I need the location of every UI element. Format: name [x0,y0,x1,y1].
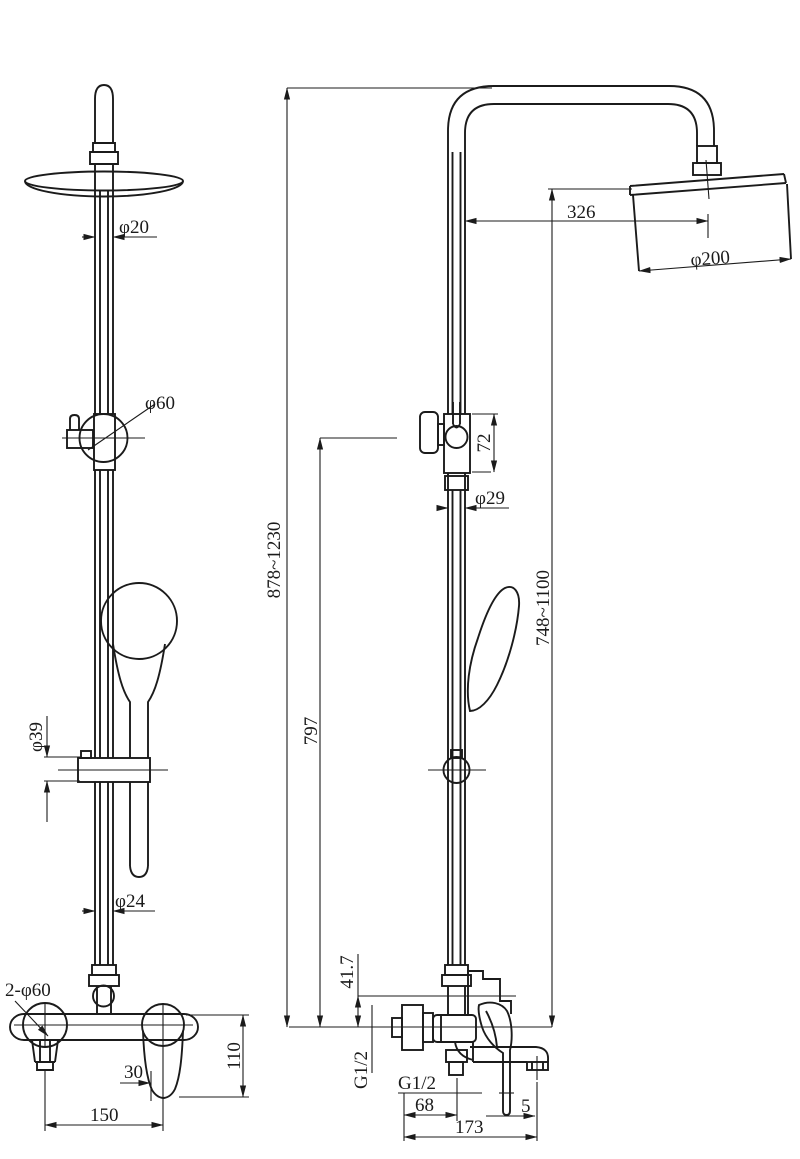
dim-878-1230: 878~1230 [264,88,492,1027]
dim-label-30: 30 [124,1062,143,1083]
dim-label-748-1100: 748~1100 [533,570,554,646]
dim-label-72: 72 [474,434,495,453]
dim-label-110: 110 [224,1042,245,1070]
dim-label-phi24: φ24 [115,891,145,912]
dim-748-1100: 748~1100 [533,189,632,1027]
shower-arm-side [448,86,721,175]
side-view: φ200 326 72 φ29 [264,86,791,1141]
dim-110: 110 [179,1015,249,1097]
riser-pipe-front [90,85,118,1014]
riser-pipe-side [448,152,465,1015]
dim-label-phi39: φ39 [26,722,47,752]
dim-label-phi200: φ200 [690,247,731,271]
dim-label-797: 797 [301,717,322,746]
dim-label-41-7: 41.7 [337,955,358,988]
dim-label-150: 150 [90,1105,119,1126]
dim-phi20: φ20 [82,217,157,238]
dim-label-878-1230: 878~1230 [264,522,285,599]
dim-label-326: 326 [567,202,596,223]
dim-label-2phi60: 2-φ60 [5,980,51,1001]
dim-label-phi29: φ29 [475,488,505,509]
dim-g12-wall: G1/2 [351,1005,372,1089]
dim-72: 72 [472,414,498,472]
slider-bracket-front: φ60 [62,393,175,470]
front-view: φ20 φ60 φ39 [5,85,249,1131]
dim-phi24: φ24 [82,891,155,912]
dim-label-g12-wall: G1/2 [351,1051,372,1089]
dim-label-68: 68 [415,1095,434,1116]
dim-150: 150 [45,1071,163,1131]
hand-shower-side [428,587,519,783]
dim-label-phi60: φ60 [145,393,175,414]
dim-g12-hose: G1/2 [398,1073,482,1094]
dim-phi29: φ29 [441,488,509,509]
dim-label-5: 5 [521,1096,531,1117]
dim-5: 5 [486,1082,537,1141]
rain-head-side: φ200 [630,160,791,271]
rain-head-front [25,172,183,197]
dim-label-173: 173 [455,1117,484,1138]
technical-drawing: φ20 φ60 φ39 [0,0,800,1159]
dim-label-g12-hose: G1/2 [398,1073,436,1094]
dim-2phi60: 2-φ60 [5,980,51,1036]
dim-label-phi20: φ20 [119,217,149,238]
dim-phi39: φ39 [26,716,80,822]
dim-326: 326 [465,202,708,223]
dim-797: 797 [301,438,397,1027]
drawing-page: φ20 φ60 φ39 [0,0,800,1159]
slider-bracket-side [420,402,470,490]
dim-173: 173 [404,1117,537,1138]
